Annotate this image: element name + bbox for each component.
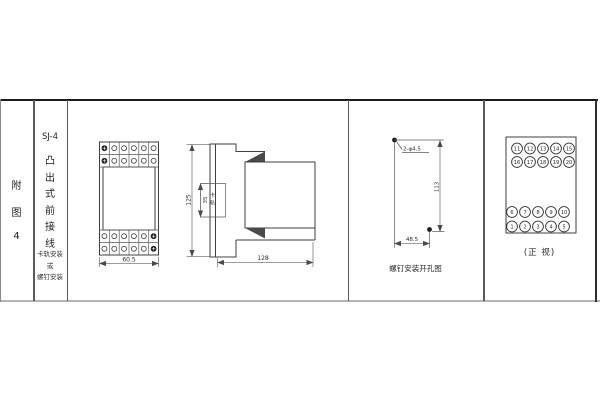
- drill-height-dim: 113: [435, 181, 441, 192]
- svg-text:19: 19: [553, 160, 560, 166]
- rail-label-char: 轨: [210, 200, 215, 207]
- svg-text:3: 3: [536, 224, 539, 230]
- terminal-10: 10: [559, 207, 570, 218]
- terminal-11: 11: [512, 143, 523, 154]
- terminal-4: 4: [546, 221, 557, 232]
- svg-text:17: 17: [527, 160, 534, 166]
- terminal-14: 14: [551, 143, 562, 154]
- front-width-dim: 60.5: [122, 257, 136, 264]
- svg-text:14: 14: [553, 146, 560, 152]
- technical-drawings: 60.5 125 35 卡 轨: [0, 0, 600, 400]
- terminal-3: 3: [533, 221, 544, 232]
- terminal-2: 2: [520, 221, 531, 232]
- svg-text:18: 18: [540, 160, 547, 166]
- terminal-layout: 11 12 13 14 15 16 17 18 19 20 6 7 8 9 10…: [506, 137, 576, 233]
- side-height-dim: 125: [186, 194, 193, 206]
- terminal-20: 20: [564, 157, 575, 168]
- terminal-17: 17: [525, 157, 536, 168]
- terminal-12: 12: [525, 143, 536, 154]
- terminal-8: 8: [533, 207, 544, 218]
- svg-text:11: 11: [514, 146, 521, 152]
- drill-width-dim: 48.5: [406, 237, 419, 243]
- svg-text:10: 10: [561, 210, 568, 216]
- drill-hole-bottom: [427, 227, 432, 232]
- side-view-drawing: 125 35 卡 轨 128: [186, 144, 316, 267]
- svg-text:16: 16: [514, 160, 521, 166]
- svg-text:20: 20: [566, 160, 573, 166]
- figure-sheet: 附 图 4 SJ-4 凸 出 式 前 接 线 卡轨安装 或 螺钉安装 螺钉安装开…: [0, 0, 600, 400]
- svg-text:8: 8: [536, 210, 539, 216]
- hole-size-label: 2-φ4.5: [403, 147, 421, 153]
- svg-text:6: 6: [510, 210, 513, 216]
- svg-text:2: 2: [523, 224, 526, 230]
- drill-diagram: 2-φ4.5 113 48.5: [392, 138, 444, 248]
- terminal-9: 9: [546, 207, 557, 218]
- svg-text:13: 13: [540, 146, 547, 152]
- terminal-19: 19: [551, 157, 562, 168]
- svg-text:1: 1: [510, 224, 513, 230]
- rail-height-dim: 35: [203, 196, 209, 203]
- svg-text:12: 12: [527, 146, 534, 152]
- terminal-7: 7: [520, 207, 531, 218]
- svg-text:7: 7: [523, 210, 526, 216]
- terminal-1: 1: [507, 221, 518, 232]
- front-view-drawing: 60.5: [100, 142, 159, 267]
- svg-text:5: 5: [562, 224, 565, 230]
- terminal-5: 5: [559, 221, 570, 232]
- svg-text:15: 15: [566, 146, 573, 152]
- side-depth-dim: 128: [257, 255, 269, 262]
- terminal-13: 13: [538, 143, 549, 154]
- svg-text:9: 9: [549, 210, 552, 216]
- rail-label-char: 卡: [210, 192, 215, 199]
- terminal-15: 15: [564, 143, 575, 154]
- terminal-18: 18: [538, 157, 549, 168]
- terminal-6: 6: [507, 207, 518, 218]
- terminal-16: 16: [512, 157, 523, 168]
